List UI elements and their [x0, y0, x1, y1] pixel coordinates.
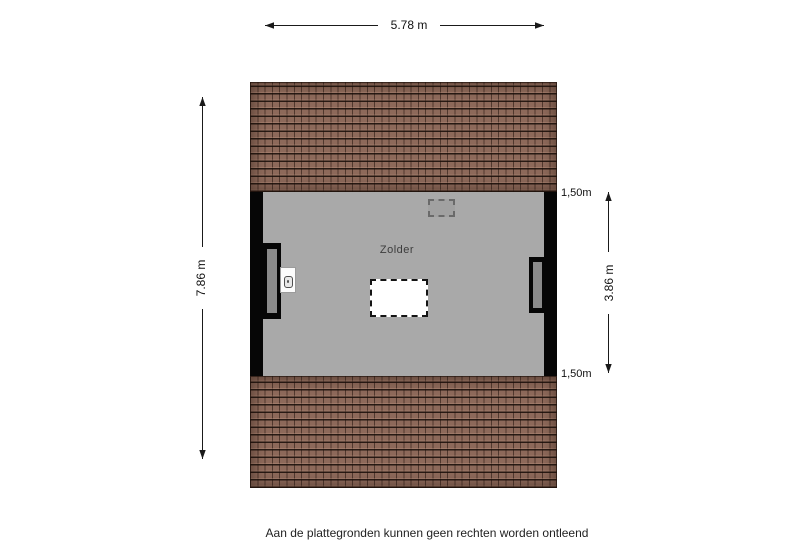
- boiler-unit: [280, 267, 296, 293]
- arrowhead-up-icon: [605, 192, 611, 201]
- dimension-label-width: 5.78 m: [378, 17, 440, 33]
- skylight: [428, 199, 455, 217]
- window-right: [529, 257, 546, 313]
- arrowhead-left-icon: [265, 22, 274, 28]
- dimension-label-inner-depth: 3.86 m: [601, 252, 617, 314]
- roof-section-top: [250, 82, 557, 192]
- arrowhead-right-icon: [535, 22, 544, 28]
- knee-wall-height-label-top: 1,50m: [561, 187, 592, 199]
- room-label: Zolder: [347, 244, 447, 256]
- window-right-glass: [533, 262, 542, 308]
- arrowhead-down-icon: [605, 364, 611, 373]
- arrowhead-up-icon: [199, 97, 205, 106]
- floorplan-page: { "floorplan": { "room_label": "Zolder",…: [0, 0, 810, 543]
- stair-opening: [370, 279, 428, 317]
- window-left: [262, 243, 281, 319]
- window-left-glass: [267, 249, 277, 313]
- arrowhead-down-icon: [199, 450, 205, 459]
- dimension-label-depth: 7.86 m: [193, 247, 209, 309]
- boiler-icon: [284, 276, 293, 288]
- disclaimer-text: Aan de plattegronden kunnen geen rechten…: [75, 526, 779, 540]
- knee-wall-height-label-bottom: 1,50m: [561, 368, 592, 380]
- roof-section-bottom: [250, 376, 557, 488]
